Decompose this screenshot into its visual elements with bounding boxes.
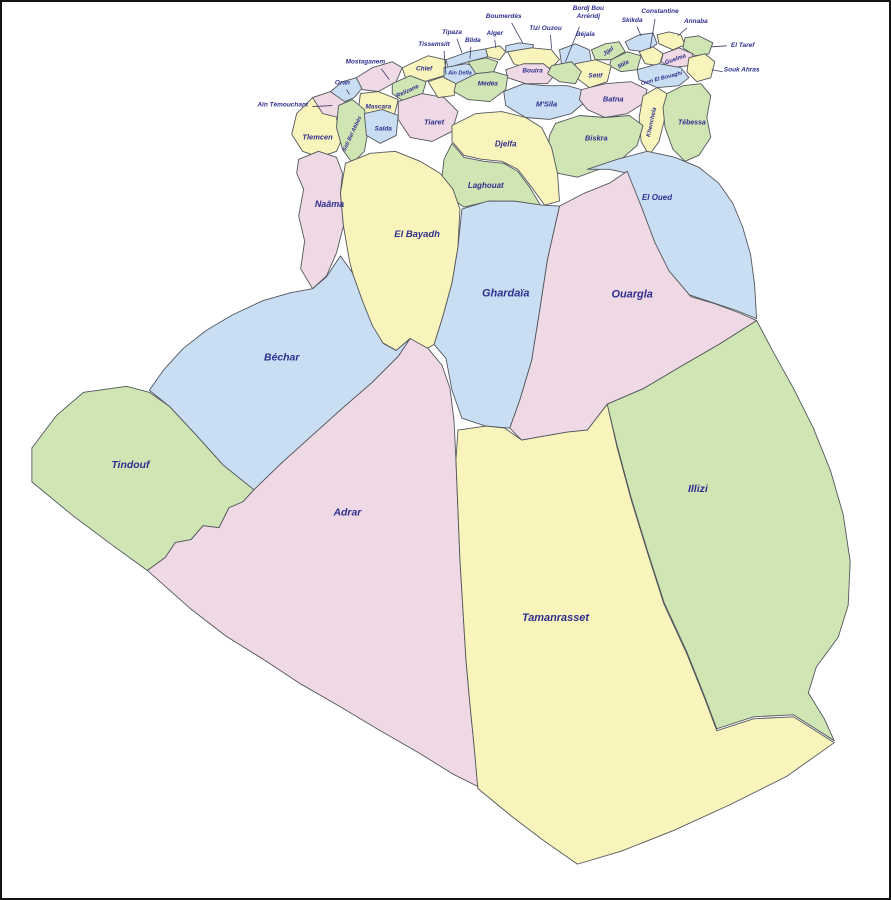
province-label-saida: Saïda [375,125,393,132]
province-label-constantine: Constantine [641,8,679,15]
province-label-batna: Batna [603,95,624,104]
province-label-ouargla: Ouargla [611,289,652,301]
province-label-tizi-ouzou: Tizi Ouzou [529,25,562,32]
province-label-oran: Oran [335,80,350,87]
province-label-setif: Sétif [588,73,603,80]
province-label-medea: Médéa [478,81,499,88]
province-label-naama: Naâma [315,199,344,209]
province-label-illizi: Illizi [688,484,709,495]
province-annaba [657,32,685,50]
leader-line-boumerdes [512,23,523,43]
province-label-tindouf: Tindouf [111,460,151,471]
province-label-chlef: Chlef [416,66,433,73]
province-label-annaba: Annaba [683,18,708,25]
province-label-boumerdes: Boumerdès [486,13,522,20]
province-shapes-layer [32,32,850,864]
province-label-laghouat: Laghouat [468,181,504,190]
province-label-tiaret: Tiaret [424,117,445,126]
province-label-tebessa: Tébessa [678,119,706,126]
province-label-alger: Alger [486,30,504,37]
province-label-tlemcen: Tlemcen [302,132,333,141]
province-label-m-sila: M'Sila [536,100,557,109]
province-label-adrar: Adrar [333,508,363,519]
province-label-tissemsilt: Tissemsilt [418,41,450,48]
province-label-el-taref: El Taref [731,42,755,49]
province-label-biskra: Biskra [585,133,608,142]
province-label-el-bayadh: El Bayadh [394,229,440,240]
leader-line-annaba [678,28,687,36]
map-svg: TlemcenAïn TémouchantOranMostaganemChlef… [2,2,889,898]
province-label-ain-defla: Aïn Defla [447,71,472,77]
province-label-tipaza: Tipaza [442,29,462,36]
province-label-ghardaia: Ghardaïa [482,288,529,300]
province-label-mostaganem: Mostaganem [346,59,386,66]
leader-line-tizi-ouzou [551,35,552,49]
province-label-djelfa: Djelfa [495,139,517,148]
province-label-bordj-bou-arreridj: Bordj BouArréridj [573,5,604,20]
province-label-ain-temouchant: Aïn Témouchant [256,102,309,109]
province-label-souk-ahras: Souk Ahras [724,67,760,74]
province-souk-ahras [687,54,715,82]
algeria-provinces-map: TlemcenAïn TémouchantOranMostaganemChlef… [0,0,891,900]
province-label-bechar: Béchar [264,352,300,363]
province-label-blida: Blida [465,37,481,44]
leader-line-el-taref [712,46,727,47]
province-label-mascara: Mascara [365,104,391,111]
province-label-skikda: Skikda [622,17,643,24]
province-label-tamanrasset: Tamanrasset [522,612,590,624]
leader-line-tipaza [457,39,462,53]
province-alger [486,46,506,60]
province-label-el-oued: El Oued [642,193,672,202]
leader-line-souk-ahras [712,70,723,72]
province-label-bouira: Bouira [522,68,543,75]
province-label-bejaia: Béjaïa [576,31,595,38]
